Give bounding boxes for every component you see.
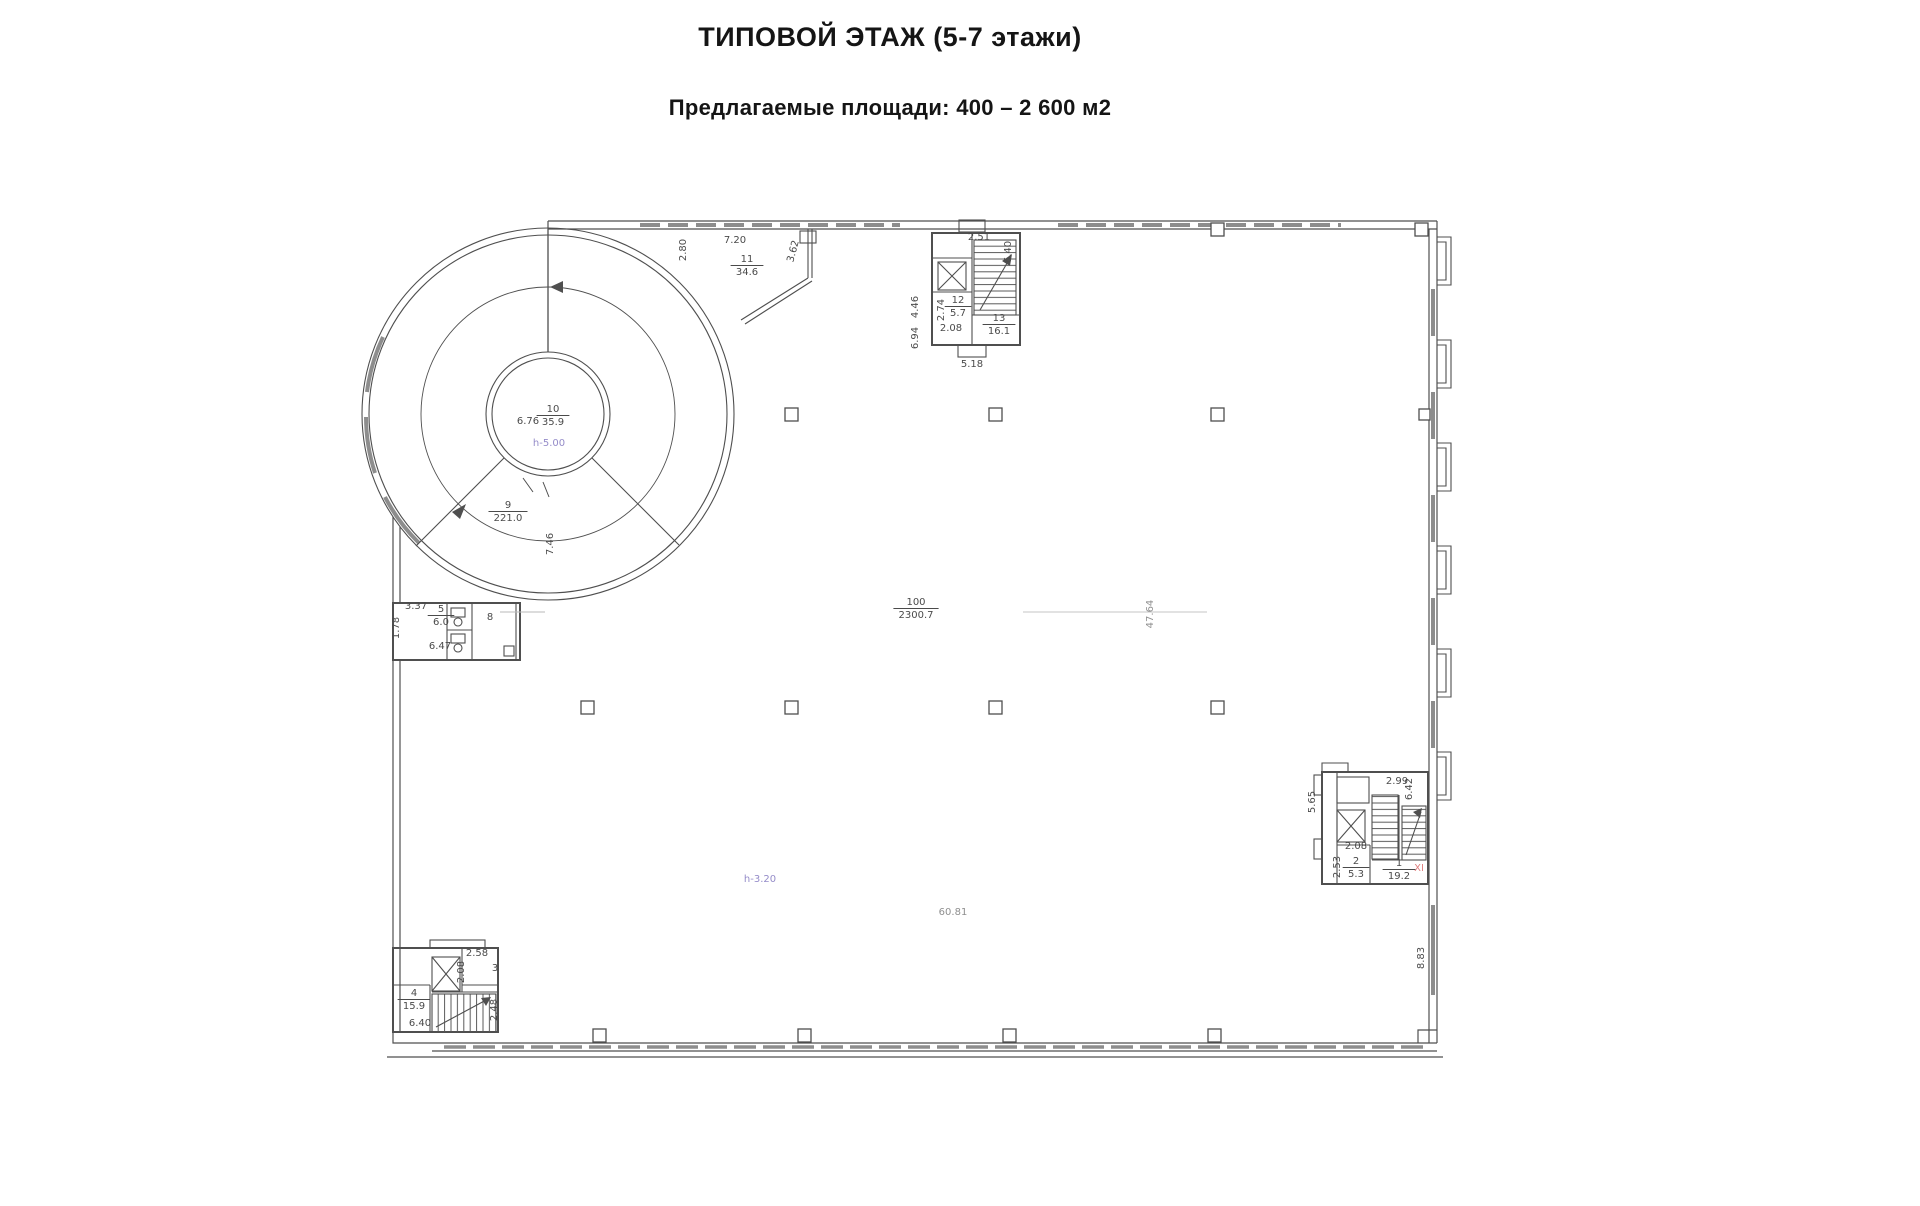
room-number: 5: [438, 604, 444, 615]
dim-label: 2.08: [1345, 841, 1367, 852]
room-number-area-label: 415.9: [398, 988, 431, 1012]
room-number-area-label: 9221.0: [489, 500, 528, 524]
room-area: 6.0: [433, 617, 449, 628]
dim-label: 3.62: [785, 239, 801, 263]
dim-label: 4.46: [910, 296, 921, 318]
dim-label: h-3.20: [744, 874, 776, 885]
dim-label: h-5.00: [533, 438, 565, 449]
room-number: 11: [741, 254, 754, 265]
room-area: 16.1: [988, 326, 1010, 337]
ramp-arrow-bottom: [452, 504, 466, 519]
room-number-area-label: 125.7: [945, 295, 972, 319]
room-area: 221.0: [494, 513, 523, 524]
dim-label: 2.51: [968, 232, 990, 243]
room-number-area-label: 1035.9: [537, 404, 570, 428]
dim-label: 2.74: [936, 299, 947, 321]
room-area: 5.3: [1348, 869, 1364, 880]
dim-label: 47.64: [1145, 600, 1156, 629]
dim-label: 60.81: [939, 907, 968, 918]
dim-label: 6.42: [1404, 778, 1415, 800]
window-bumps: [1437, 237, 1451, 800]
room-number-area-label: 25.3: [1343, 856, 1370, 880]
dim-label: 2.53: [1332, 856, 1343, 878]
dim-label: XI: [1414, 863, 1424, 874]
room-number: 1: [1396, 858, 1402, 869]
room-area: 5.7: [950, 308, 966, 319]
dim-label: 3: [492, 963, 498, 974]
dim-label: 2.08: [940, 323, 962, 334]
room-number: 100: [906, 597, 925, 608]
dim-label: 2.58: [466, 948, 488, 959]
dim-label: 7.46: [545, 533, 556, 555]
floor-plan: 7.202.803.622.516.404.466.942.742.085.18…: [0, 0, 1920, 1206]
room-number: 10: [547, 404, 560, 415]
slide-page: ТИПОВОЙ ЭТАЖ (5-7 этажи) Предлагаемые пл…: [0, 0, 1920, 1206]
room-number: 4: [411, 988, 417, 999]
dim-label: 6.40: [1003, 241, 1014, 263]
dim-label: 2.08: [456, 961, 467, 983]
dim-label: 7.20: [724, 235, 746, 246]
room-number-area-label: 56.0: [428, 604, 455, 628]
room-number: 12: [952, 295, 965, 306]
dim-label: 1.78: [391, 617, 402, 639]
room-area: 15.9: [403, 1001, 425, 1012]
dim-label: 3.37: [405, 601, 427, 612]
room-number: 9: [505, 500, 511, 511]
room-area: 2300.7: [899, 610, 934, 621]
dim-label: 6.40: [409, 1018, 431, 1029]
dim-label: 8.83: [1416, 947, 1427, 969]
room-number-area-label: 1316.1: [983, 313, 1016, 337]
dim-label: 6.76: [517, 416, 539, 427]
room-number: 2: [1353, 856, 1359, 867]
room-number-area-label: 1134.6: [731, 254, 764, 278]
ramp-arrow-top: [550, 281, 563, 293]
room-area: 19.2: [1388, 871, 1410, 882]
dim-label: 2.48: [489, 999, 500, 1021]
room-area: 34.6: [736, 267, 758, 278]
window-glazing: [366, 225, 1433, 1047]
room-number-area-label: 119.2: [1383, 858, 1416, 882]
room-number-area-label: 1002300.7: [893, 597, 938, 621]
dim-label: 6.47: [429, 641, 451, 652]
dim-label: 6.94: [910, 327, 921, 349]
room-number: 13: [993, 313, 1006, 324]
dim-label: 5.18: [961, 359, 983, 370]
room-area: 35.9: [542, 417, 564, 428]
dim-label: 2.80: [678, 239, 689, 261]
dim-label: 8: [487, 612, 493, 623]
dim-label: 5.65: [1307, 791, 1318, 813]
